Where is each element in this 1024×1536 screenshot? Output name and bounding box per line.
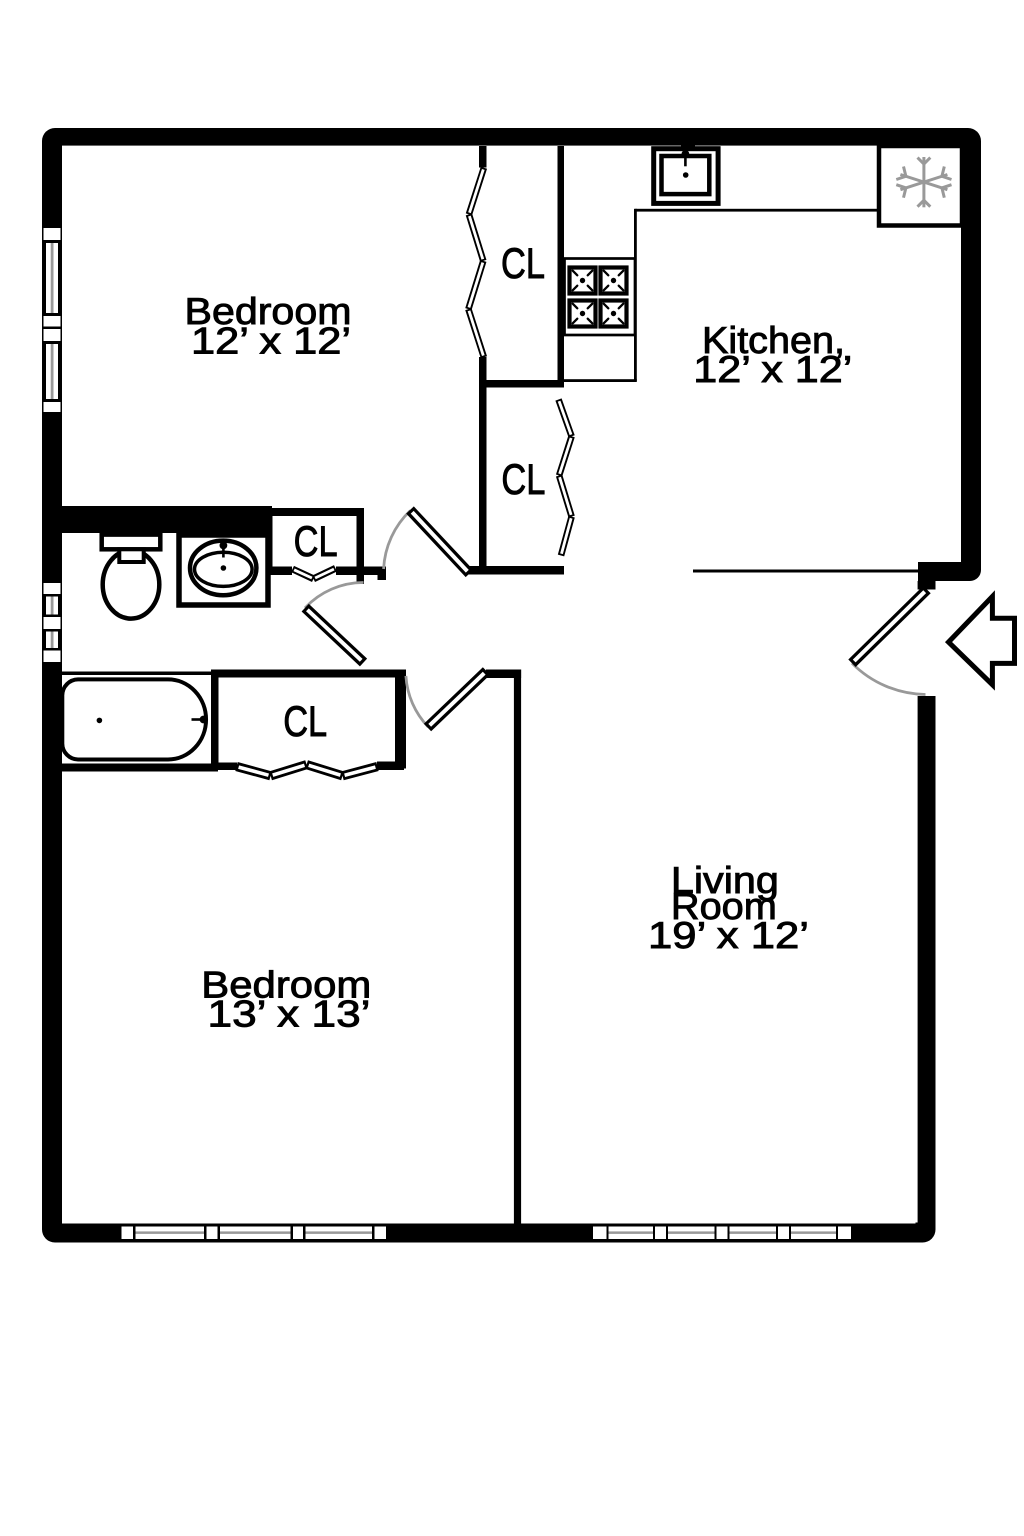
svg-text:CL: CL: [294, 518, 338, 566]
svg-text:13’ x 13’: 13’ x 13’: [208, 992, 371, 1034]
svg-text:CL: CL: [283, 698, 327, 746]
svg-text:CL: CL: [501, 240, 545, 288]
svg-text:12’ x 12’: 12’ x 12’: [693, 348, 852, 390]
svg-text:CL: CL: [501, 456, 545, 504]
svg-text:19’ x 12’: 19’ x 12’: [648, 914, 809, 956]
svg-text:12’ x 12’: 12’ x 12’: [191, 320, 351, 362]
